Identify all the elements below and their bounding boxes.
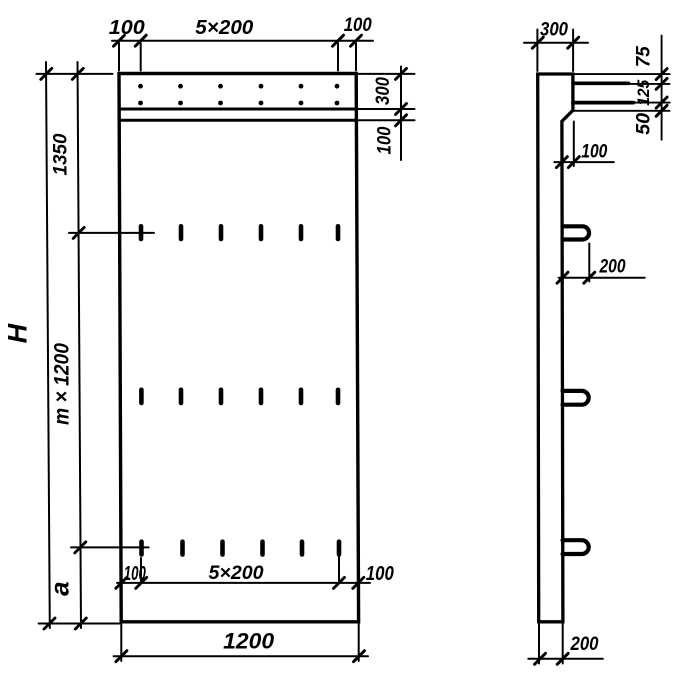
svg-text:100: 100 (124, 563, 146, 585)
svg-text:300: 300 (540, 19, 568, 41)
svg-text:100: 100 (581, 142, 607, 163)
svg-text:a: a (45, 581, 75, 595)
svg-text:100: 100 (344, 15, 372, 36)
svg-text:300: 300 (373, 77, 394, 105)
svg-text:75: 75 (634, 46, 655, 67)
svg-text:100: 100 (366, 563, 394, 585)
svg-text:5×200: 5×200 (209, 563, 264, 584)
svg-text:50: 50 (634, 112, 655, 134)
svg-text:200: 200 (570, 634, 599, 655)
svg-text:100: 100 (375, 126, 396, 154)
svg-text:200: 200 (599, 257, 626, 278)
svg-text:m × 1200: m × 1200 (51, 343, 74, 425)
svg-text:1200: 1200 (223, 629, 275, 654)
svg-text:1350: 1350 (51, 133, 72, 175)
svg-text:125: 125 (634, 79, 653, 105)
svg-text:100: 100 (109, 17, 145, 39)
svg-text:5×200: 5×200 (195, 17, 253, 39)
svg-text:H: H (3, 323, 33, 343)
